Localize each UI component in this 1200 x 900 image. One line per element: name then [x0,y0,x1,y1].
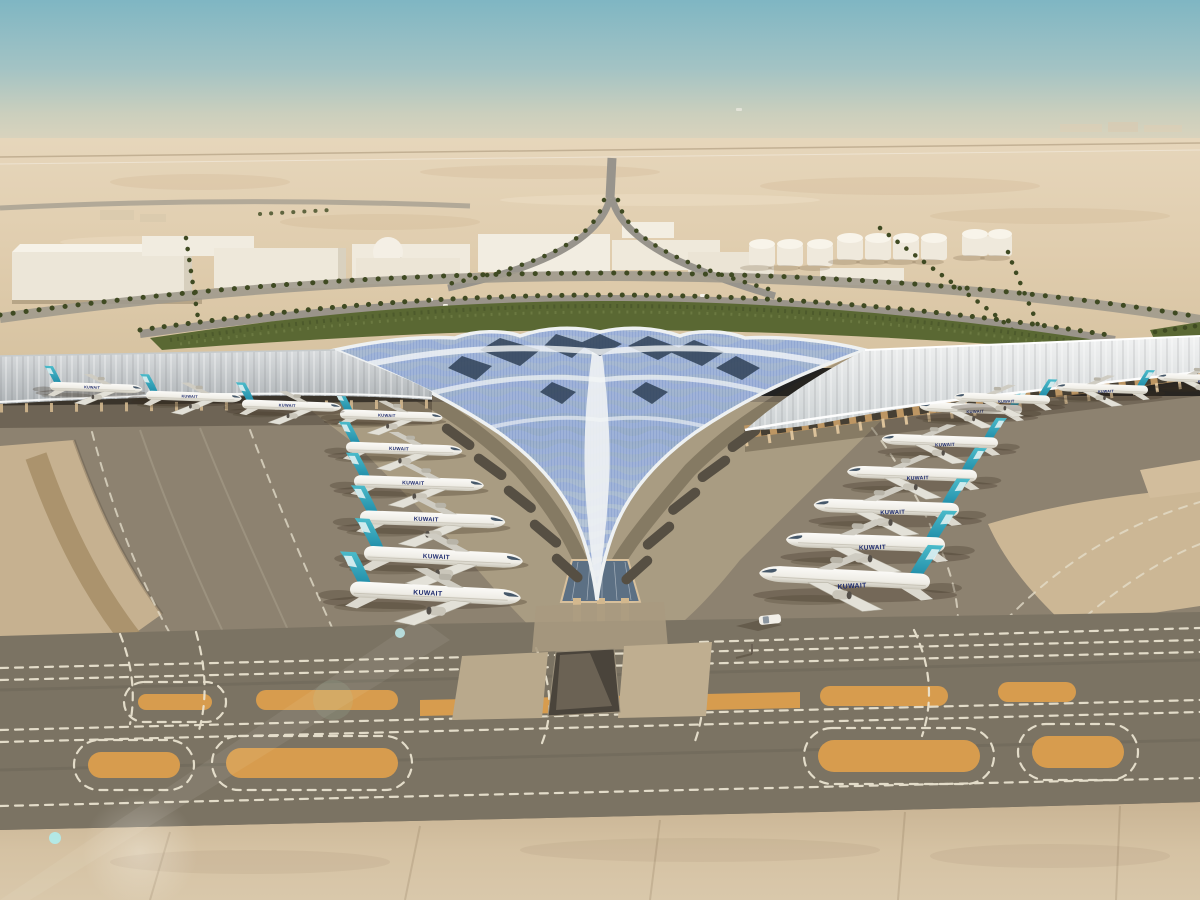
aircraft-airline-label: KUWAIT [998,399,1015,404]
horizon-structure [1144,125,1182,132]
aircraft-airline-label: KUWAIT [279,402,296,408]
aircraft-airline-label: KUWAIT [859,544,886,552]
aircraft-airline-label: KUWAIT [402,480,425,487]
aircraft-airline-label: KUWAIT [389,446,409,452]
flare-dot [395,628,405,638]
aircraft-airline-label: KUWAIT [181,394,198,399]
aircraft-airline-label: KUWAIT [907,475,930,482]
aircraft-airline-label: KUWAIT [423,553,451,561]
sky [0,0,1200,152]
aircraft-airline-label: KUWAIT [1098,389,1114,394]
aircraft-airline-label: KUWAIT [414,517,439,524]
horizon-structure [1108,122,1138,132]
aircraft-airline-label: KUWAIT [378,413,396,419]
sky-gradient [0,0,1200,152]
horizon-structure [1060,124,1102,132]
aircraft-airline-label: KUWAIT [84,385,100,390]
flare-dot [49,832,61,844]
aircraft-airline-label: KUWAIT [880,510,905,517]
airport-aerial-rendering: KUWAITKUWAITKUWAITKUWAITKUWAITKUWAITKUWA… [0,0,1200,900]
aircraft-airline-label: KUWAIT [935,442,955,448]
vehicle-windshield [763,616,770,624]
rendering-canvas: KUWAITKUWAITKUWAITKUWAITKUWAITKUWAITKUWA… [0,0,1200,900]
